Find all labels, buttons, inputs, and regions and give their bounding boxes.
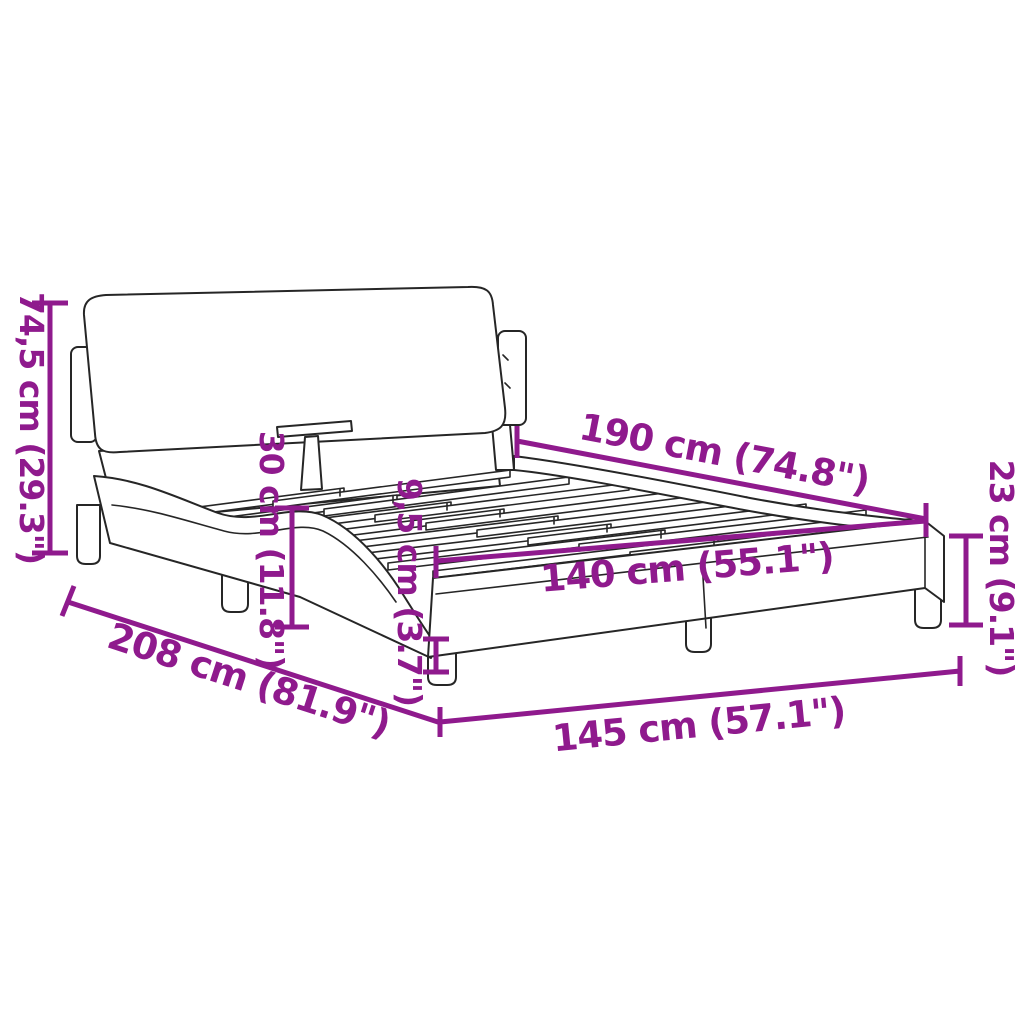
dim-headboard-height: 74,5 cm (29.3") <box>12 292 68 564</box>
dim-label-total-length: 208 cm (81.9") <box>102 614 395 746</box>
dim-footend-height-line <box>949 536 983 625</box>
dim-total-width: 145 cm (57.1") <box>440 656 960 760</box>
dim-label-headboard-height: 74,5 cm (29.3") <box>12 292 51 564</box>
dim-label-footend-height: 23 cm (9.1") <box>982 460 1021 677</box>
dim-label-total-width: 145 cm (57.1") <box>550 689 847 760</box>
center-bracket-stem <box>301 436 322 490</box>
headboard-leg-right <box>492 425 514 470</box>
dim-label-platform-height: 30 cm (11.8") <box>252 431 291 670</box>
diagram-canvas: 74,5 cm (29.3") 30 cm (11.8") 9,5 cm (3.… <box>0 0 1024 1024</box>
dim-footend-height: 23 cm (9.1") <box>949 460 1021 677</box>
leg-rear-left <box>77 505 100 564</box>
dim-label-base-rail-height: 9,5 cm (3.7") <box>390 478 429 706</box>
bed-frame-dimension-diagram: 74,5 cm (29.3") 30 cm (11.8") 9,5 cm (3.… <box>0 0 1024 1024</box>
